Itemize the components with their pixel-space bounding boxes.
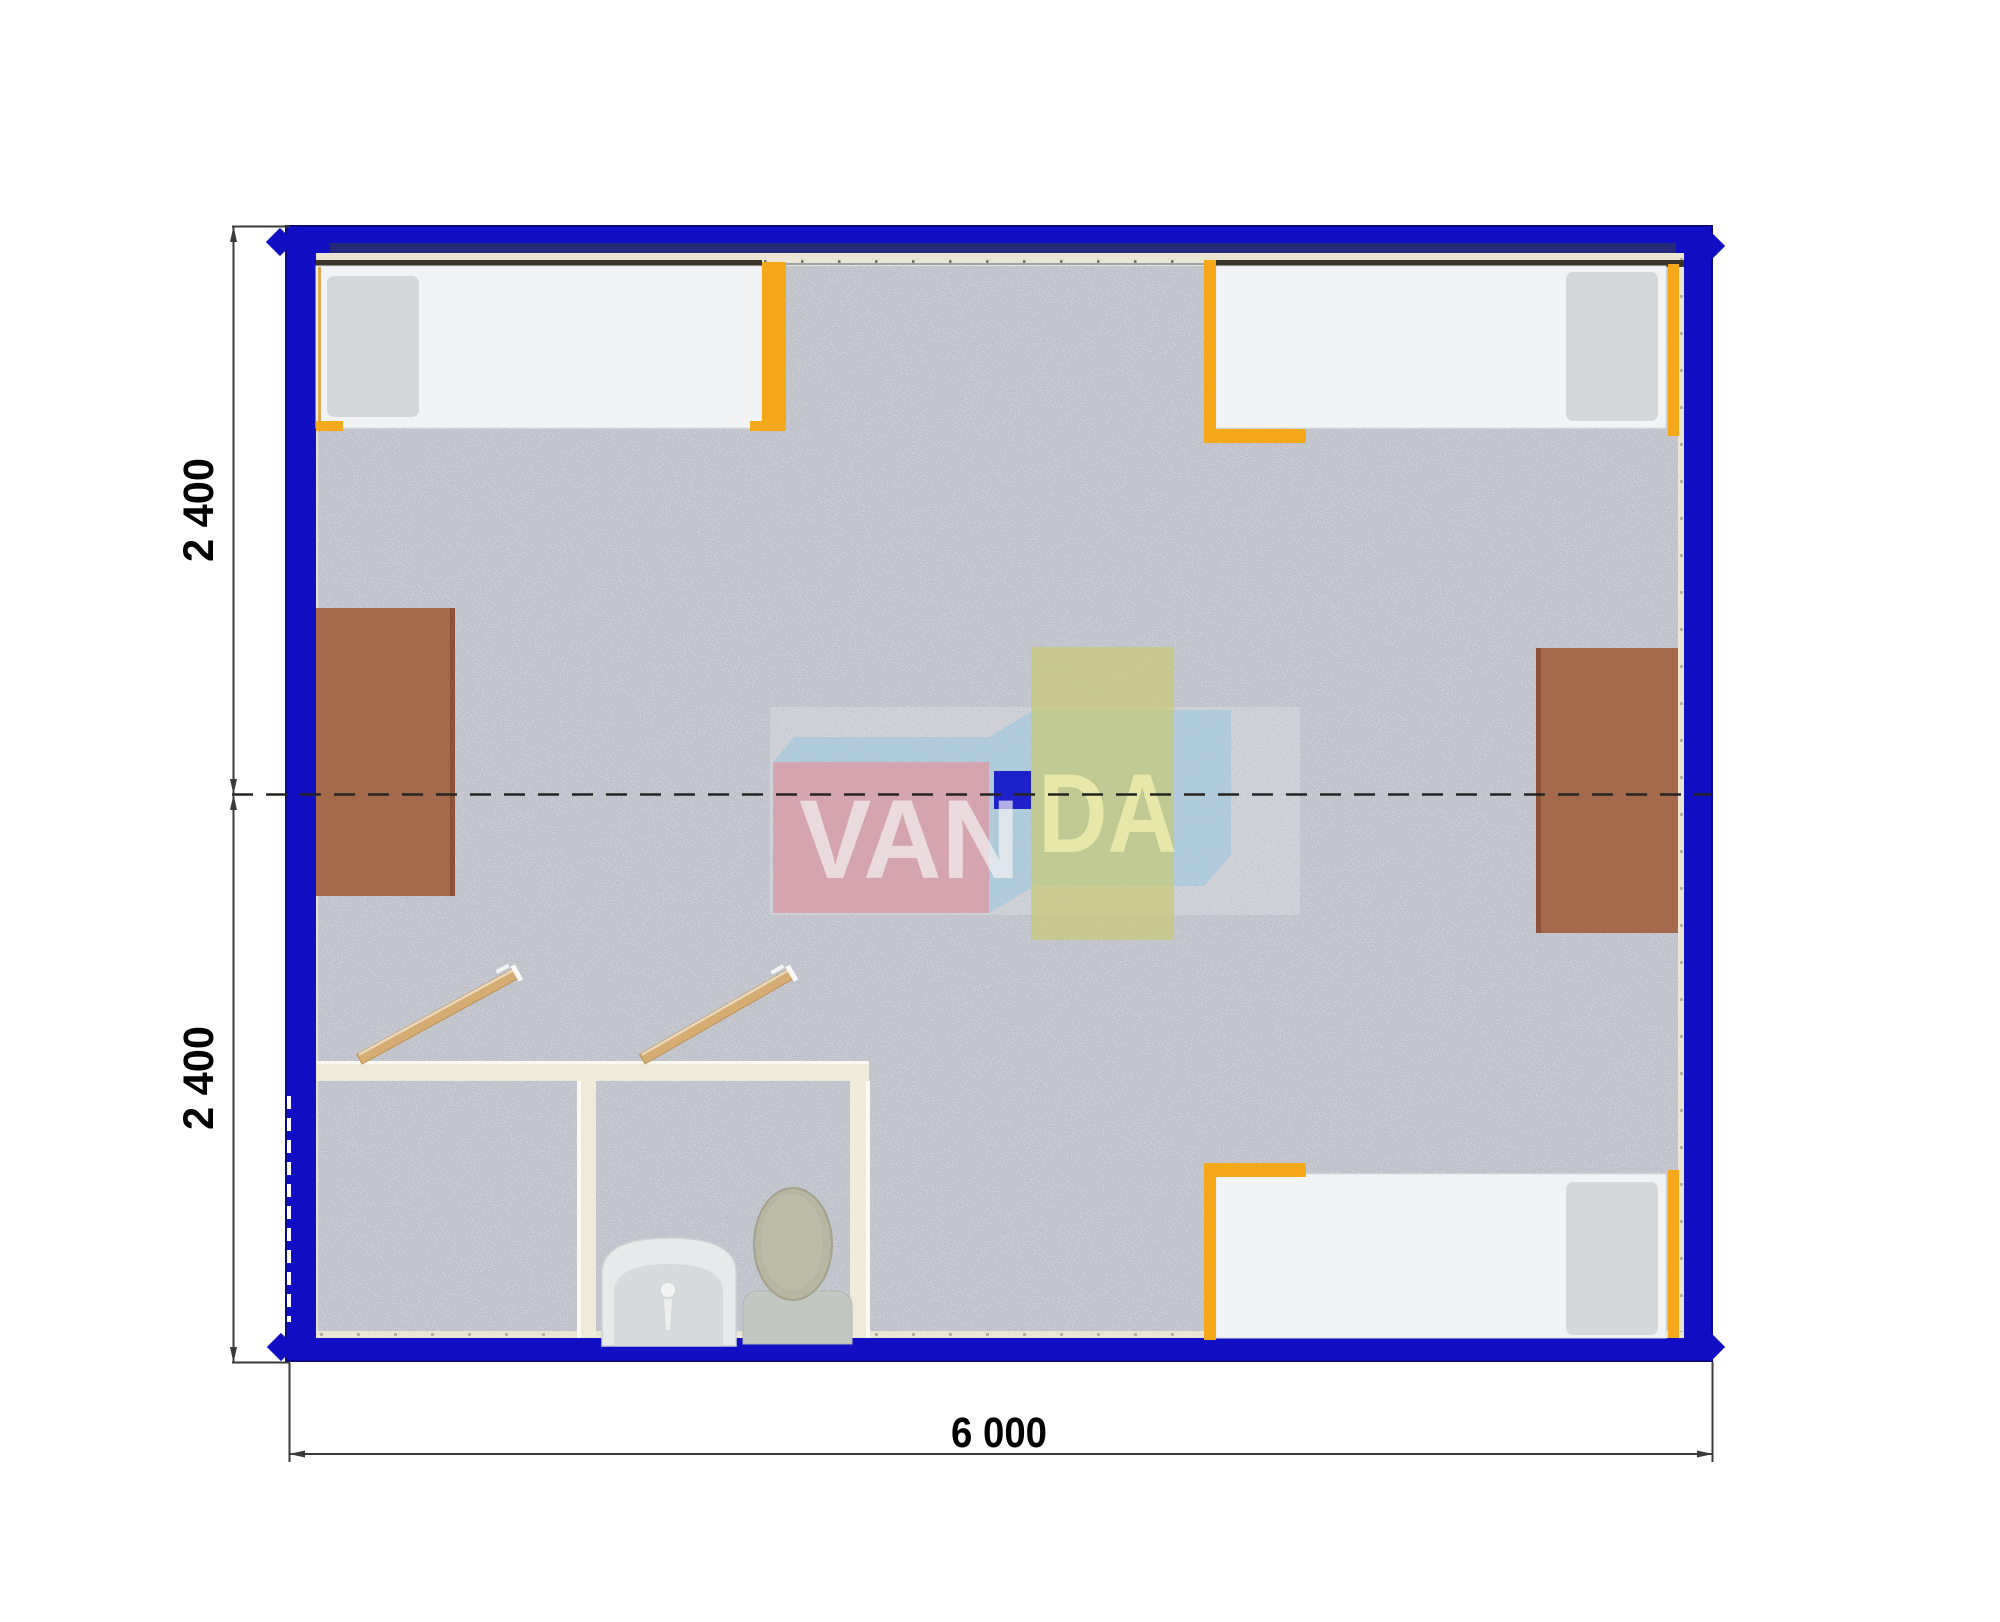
svg-text:DA: DA	[1038, 751, 1177, 876]
svg-text:2 400: 2 400	[175, 1026, 223, 1130]
svg-text:2 400: 2 400	[175, 458, 223, 562]
svg-text:6 000: 6 000	[951, 1409, 1047, 1457]
